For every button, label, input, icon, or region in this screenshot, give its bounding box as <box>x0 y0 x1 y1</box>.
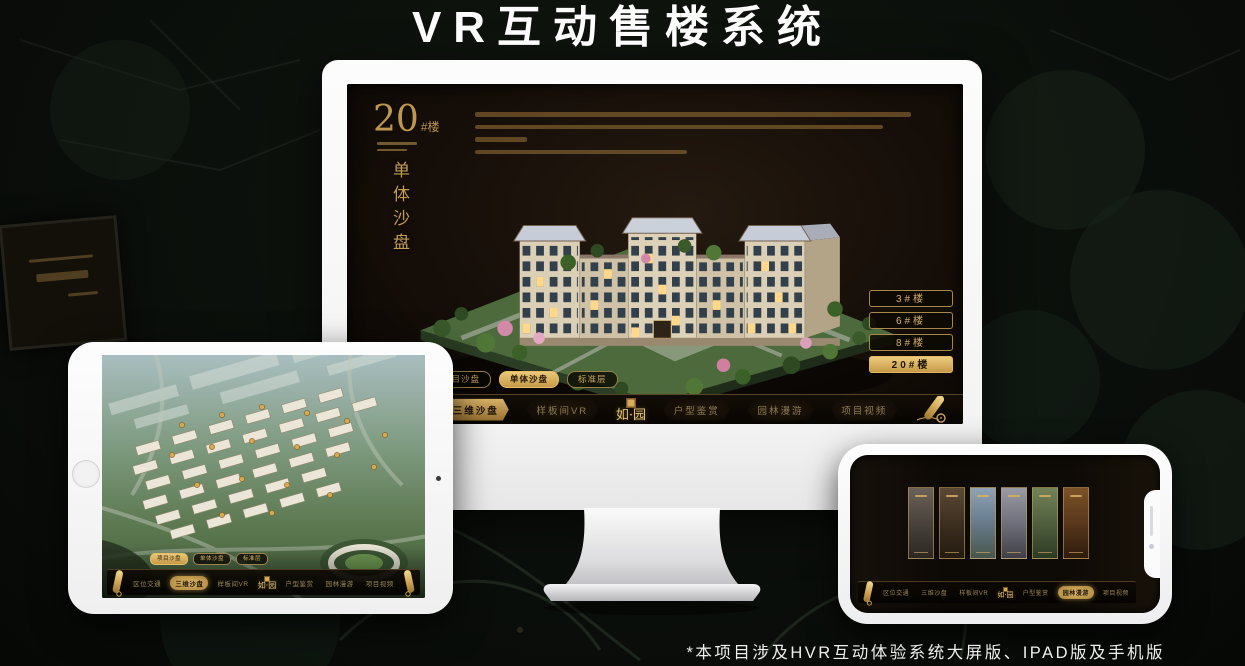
floor-button-group: 3#楼 6#楼 8#楼 20#楼 <box>869 290 953 373</box>
phone-nav-bar: 区位交通 三维沙盘 样板间VR 如·园 户型鉴赏 园林漫游 项目视频 <box>858 581 1136 603</box>
phone-mockup: 区位交通 三维沙盘 样板间VR 如·园 户型鉴赏 园林漫游 项目视频 <box>838 444 1172 624</box>
phone-screen: 区位交通 三维沙盘 样板间VR 如·园 户型鉴赏 园林漫游 项目视频 <box>850 455 1160 613</box>
panorama-panel-strip <box>908 487 1089 559</box>
floor-button-20[interactable]: 20#楼 <box>869 356 953 373</box>
phone-notch <box>1144 490 1160 578</box>
logo-seal-icon <box>626 398 636 408</box>
nav-item-unit-plans[interactable]: 户型鉴赏 <box>282 576 316 590</box>
sandtable-mode-tabs: 项目沙盘 单体沙盘 标准层 <box>431 371 618 388</box>
marketing-composite: VR互动售楼系统 20#楼 单体沙盘 <box>0 0 1245 666</box>
tab-standard-floor[interactable]: 标准层 <box>236 553 268 565</box>
nav-item-showroom-vr[interactable]: 样板间VR <box>215 576 252 590</box>
camera-icon <box>1149 544 1154 549</box>
page-title: VR互动售楼系统 <box>0 0 1245 56</box>
panorama-panel[interactable] <box>1063 487 1089 559</box>
building-sandtable-render <box>403 144 908 406</box>
background-plaque <box>0 215 127 351</box>
tab-single-sandtable[interactable]: 单体沙盘 <box>499 371 559 388</box>
nav-item-3d-sandtable[interactable]: 三维沙盘 <box>170 576 208 590</box>
nav-item-unit-plans[interactable]: 户型鉴赏 <box>1020 586 1052 599</box>
floor-button-8[interactable]: 8#楼 <box>869 334 953 351</box>
panorama-panel[interactable] <box>908 487 934 559</box>
nav-item-project-video[interactable]: 项目视频 <box>1100 586 1132 599</box>
scroll-handle-icon <box>111 569 124 597</box>
floor-button-6[interactable]: 6#楼 <box>869 312 953 329</box>
logo-text: 如·园 <box>258 582 277 590</box>
tablet-mode-tabs: 项目沙盘 单体沙盘 标准层 <box>150 553 268 565</box>
floor-button-3[interactable]: 3#楼 <box>869 290 953 307</box>
app-logo: 如·园 <box>997 587 1013 599</box>
monitor-stand <box>537 508 767 618</box>
panorama-panel[interactable] <box>1032 487 1058 559</box>
tab-single-sandtable[interactable]: 单体沙盘 <box>193 553 231 565</box>
nav-item-3d-sandtable[interactable]: 三维沙盘 <box>918 586 950 599</box>
panorama-panel[interactable] <box>1001 487 1027 559</box>
nav-item-location-traffic[interactable]: 区位交通 <box>130 576 164 590</box>
panorama-panel[interactable] <box>939 487 965 559</box>
block-number-suffix: #楼 <box>421 120 440 134</box>
nav-item-garden-tour[interactable]: 园林漫游 <box>747 399 813 421</box>
scroll-icon[interactable] <box>915 396 951 424</box>
app-logo: 如·园 <box>616 398 646 422</box>
camera-icon <box>436 476 441 481</box>
panorama-panel[interactable] <box>970 487 996 559</box>
app-logo: 如·园 <box>258 576 277 590</box>
logo-text: 如·园 <box>997 592 1013 599</box>
nav-item-project-video[interactable]: 项目视频 <box>831 399 897 421</box>
logo-text: 如·园 <box>616 409 646 422</box>
speaker-icon <box>1150 506 1153 536</box>
nav-item-location-traffic[interactable]: 区位交通 <box>880 586 912 599</box>
tablet-screen: 项目沙盘 单体沙盘 标准层 区位交通 三维沙盘 样板间VR 如·园 户型鉴赏 园… <box>102 355 425 598</box>
nav-item-garden-tour[interactable]: 园林漫游 <box>1058 586 1094 599</box>
nav-item-project-video[interactable]: 项目视频 <box>363 576 397 590</box>
tablet-mockup: 项目沙盘 单体沙盘 标准层 区位交通 三维沙盘 样板间VR 如·园 户型鉴赏 园… <box>68 342 453 614</box>
scroll-handle-icon <box>403 569 416 597</box>
nav-item-showroom-vr[interactable]: 样板间VR <box>956 586 991 599</box>
tab-project-sandtable[interactable]: 项目沙盘 <box>150 553 188 565</box>
nav-item-unit-plans[interactable]: 户型鉴赏 <box>664 399 730 421</box>
tablet-nav-bar: 区位交通 三维沙盘 样板间VR 如·园 户型鉴赏 园林漫游 项目视频 <box>107 569 420 595</box>
nav-item-showroom-vr[interactable]: 样板间VR <box>526 399 598 421</box>
footnote-text: *本项目涉及HVR互动体验系统大屏版、IPAD版及手机版 <box>686 639 1165 663</box>
tab-standard-floor[interactable]: 标准层 <box>567 371 618 388</box>
home-button[interactable] <box>72 460 100 488</box>
scroll-handle-icon <box>862 580 874 606</box>
block-number: 20 <box>373 99 419 140</box>
nav-item-garden-tour[interactable]: 园林漫游 <box>323 576 357 590</box>
